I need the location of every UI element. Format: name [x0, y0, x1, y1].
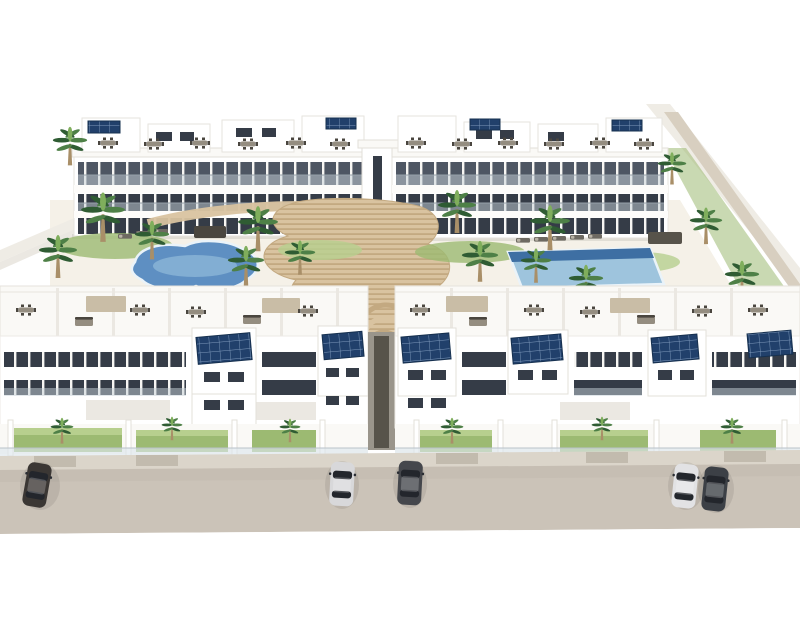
solar-panel-array [326, 118, 356, 129]
solar-panel-array [322, 331, 364, 359]
solar-panel-array [470, 119, 500, 130]
penthouse-row [82, 116, 364, 152]
solar-panel-array [401, 333, 451, 363]
solar-panel-array [612, 120, 642, 131]
solar-tower [192, 328, 256, 428]
render-scene [0, 0, 800, 640]
roof-canopy [610, 298, 650, 313]
roof-canopy [262, 298, 300, 313]
front-right-building [395, 286, 800, 459]
terrace-awning [560, 402, 630, 420]
terrace-awning [86, 400, 170, 420]
solar-panel-array [747, 330, 793, 358]
solar-tower [398, 328, 456, 408]
central-alley [368, 332, 395, 450]
front-left-building [0, 286, 368, 459]
pool-pergola [194, 226, 226, 238]
solar-panel-array [196, 333, 252, 365]
solar-panel-array [651, 334, 699, 363]
roof-canopy [446, 296, 488, 312]
car [395, 460, 424, 505]
solar-panel-array [88, 121, 120, 133]
solar-panel-array [511, 334, 563, 364]
solar-tower [318, 326, 368, 405]
architectural-render [0, 0, 800, 640]
solar-tower [648, 330, 706, 396]
pool-pergola [648, 232, 682, 244]
roof-canopy [86, 296, 126, 312]
car [327, 461, 356, 506]
solar-tower [508, 330, 568, 394]
foreground-white [0, 528, 800, 640]
